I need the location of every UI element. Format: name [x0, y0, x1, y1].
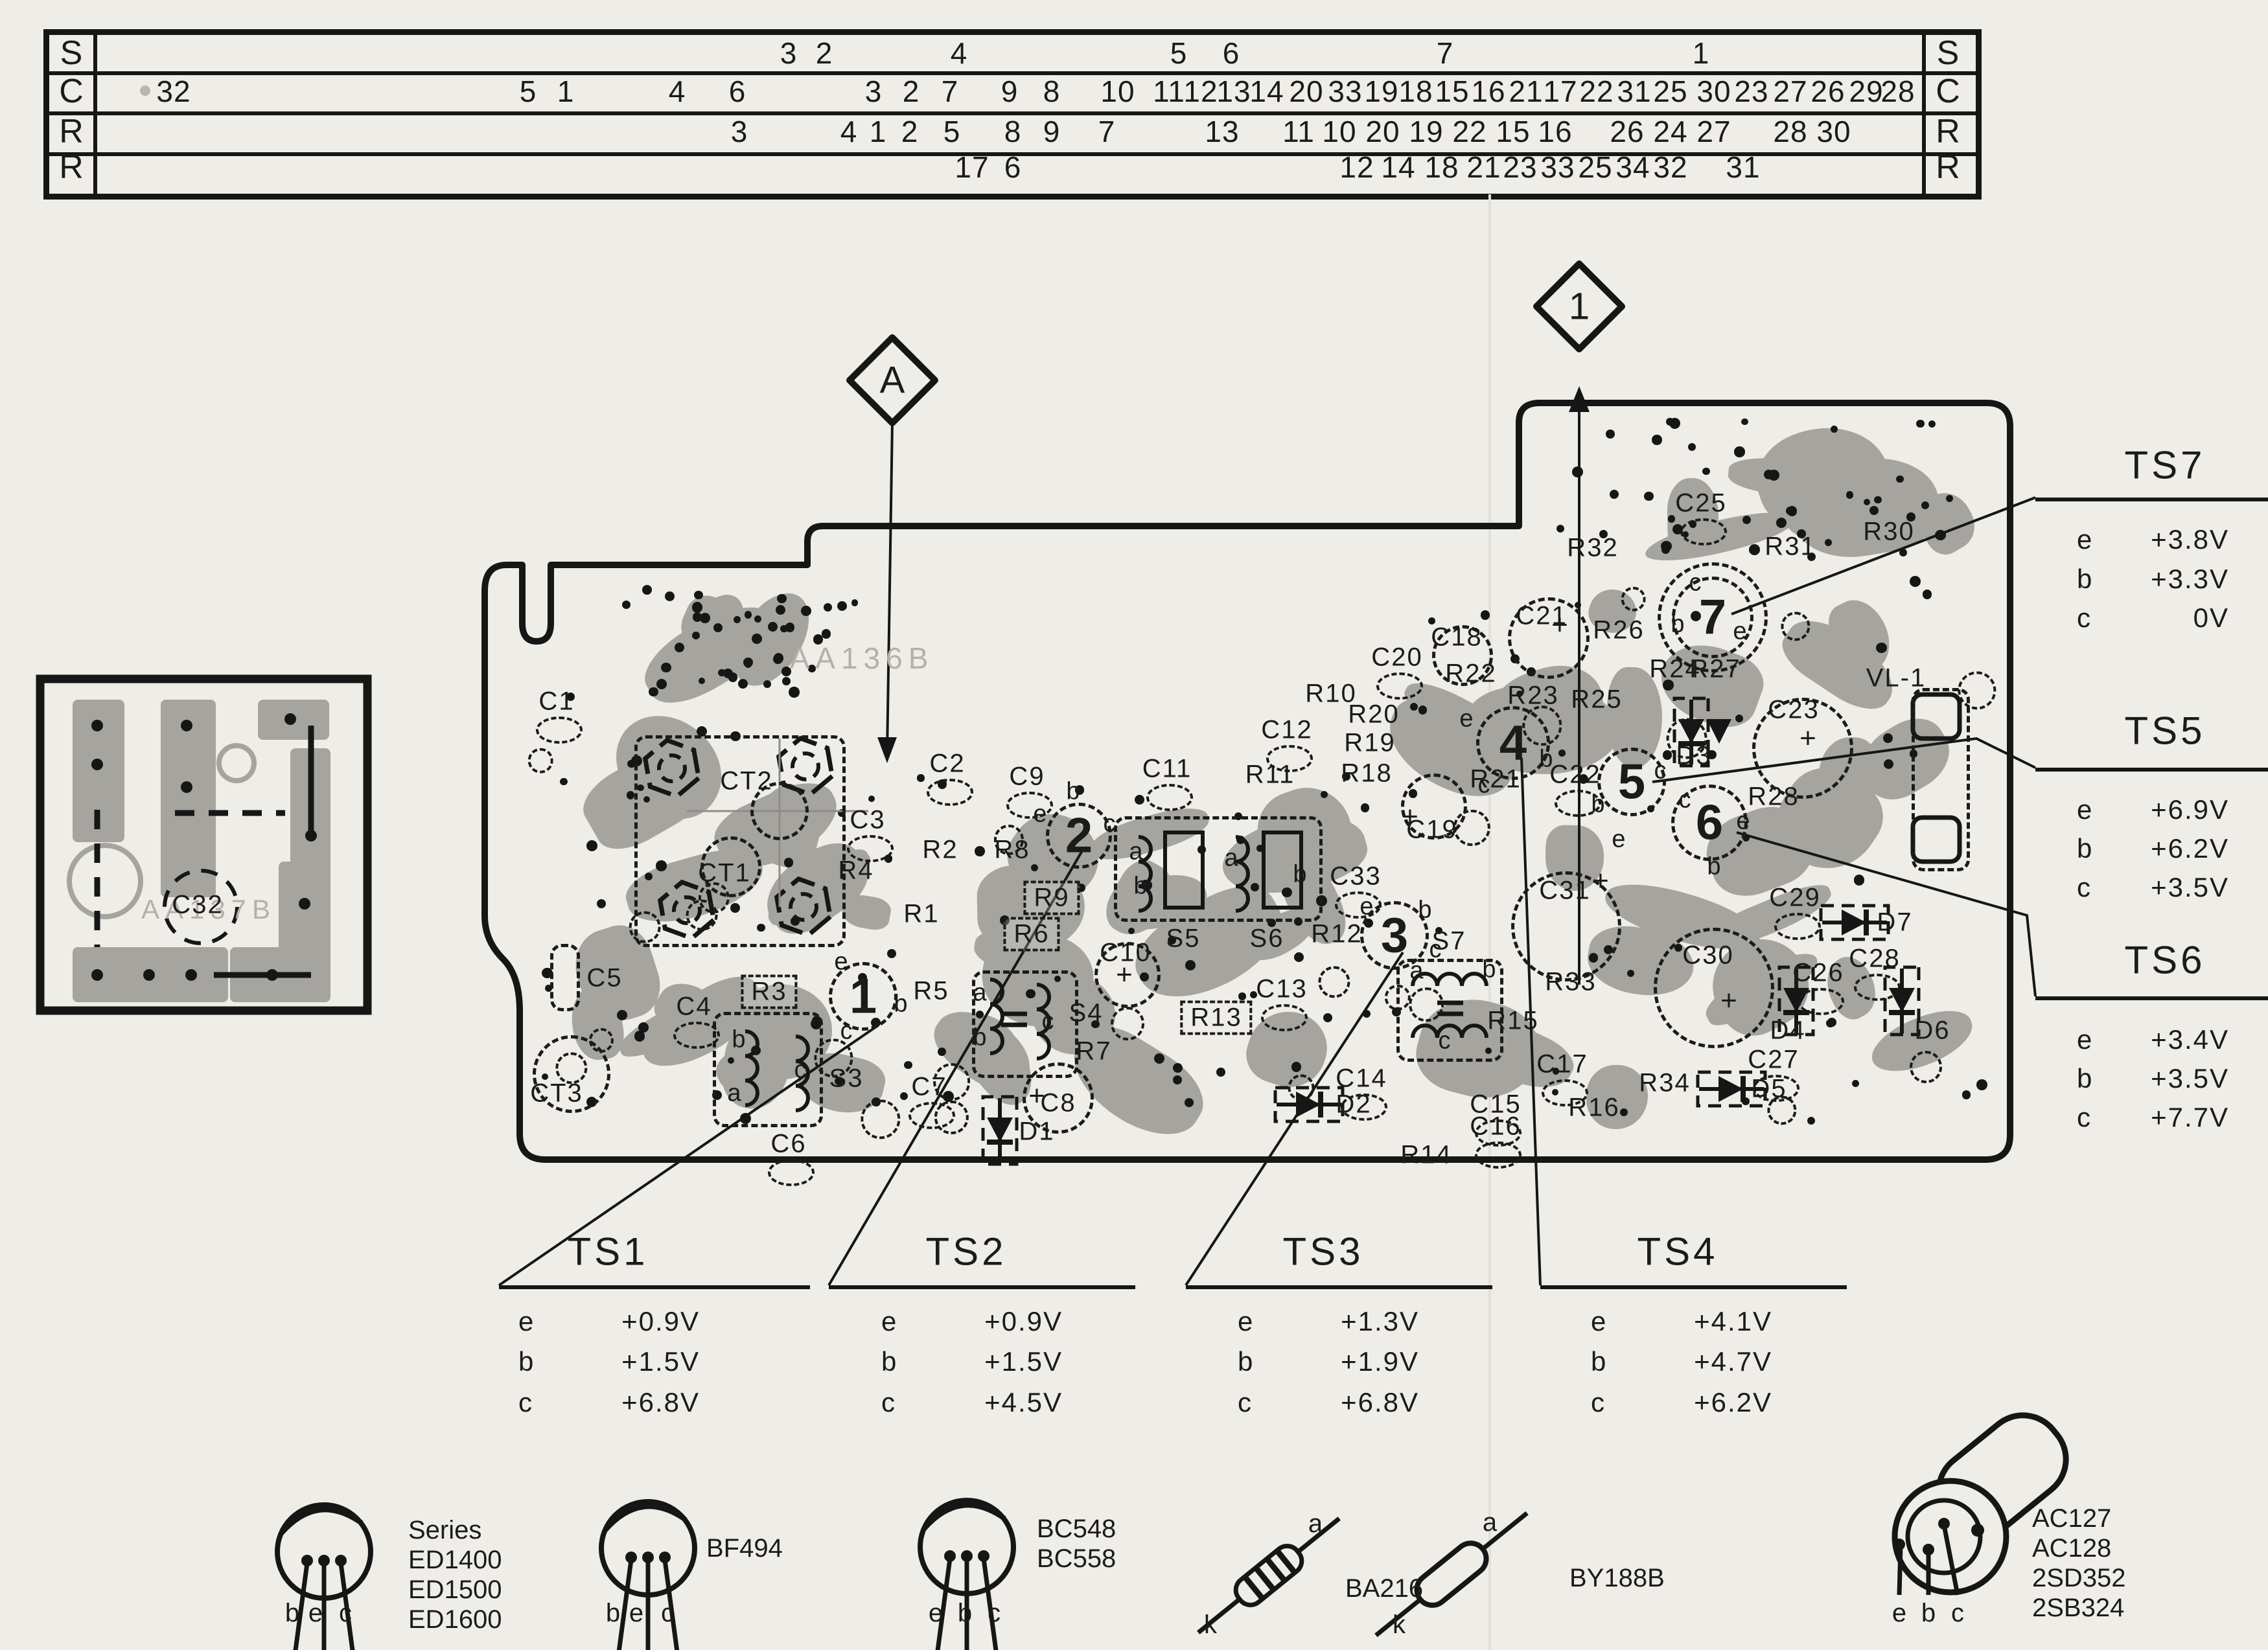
table-cell-number: 11 — [1282, 114, 1315, 149]
table-cell-number: 17 — [955, 150, 989, 185]
component-label-R16: R16 — [1568, 1094, 1619, 1123]
pin-letter-c: c — [794, 1057, 807, 1084]
solder-pad-dot — [1702, 468, 1710, 476]
solder-pad-dot — [1787, 506, 1797, 516]
solder-pad-dot — [975, 846, 985, 856]
legend-pin-b: b — [1921, 1599, 1936, 1628]
pin-letter-a: a — [1409, 957, 1423, 985]
board-name: AA136B — [790, 641, 934, 676]
legend-pin-c: c — [988, 1599, 1001, 1628]
component-label-R9: R9 — [1023, 881, 1080, 915]
small-board-pad — [266, 969, 278, 981]
small-board-pad — [143, 969, 155, 981]
solder-pad-dot — [1734, 446, 1744, 457]
pin-letter-c: c — [1042, 1008, 1054, 1036]
legend-pin-a: a — [1308, 1509, 1323, 1539]
pin-letter-e: e — [1733, 618, 1746, 646]
voltage-table-title-TS2: TS2 — [925, 1230, 1006, 1274]
solder-pad-dot — [801, 606, 811, 616]
capacitor-ellipse — [1854, 974, 1901, 1001]
legend-pin-b: b — [958, 1599, 972, 1628]
table-cell-number: 3 — [865, 74, 883, 109]
component-label-R18: R18 — [1341, 759, 1392, 788]
voltage-table-underline — [2035, 498, 2268, 501]
component-label-C31: C31 — [1539, 877, 1590, 906]
pad-dashed-circle — [1111, 1007, 1144, 1040]
component-label-C12: C12 — [1261, 716, 1312, 745]
transistor-number-7: 7 — [1699, 590, 1726, 646]
solder-pad-dot — [1644, 492, 1654, 501]
component-label-C4: C4 — [676, 992, 712, 1022]
voltage-value: +1.5V — [538, 1346, 700, 1377]
table-cell-number: 33 — [1328, 74, 1362, 109]
legend-name-ed-series: Series — [408, 1516, 481, 1545]
solder-pad-dot — [1962, 1090, 1971, 1099]
capacitor-ellipse — [1680, 518, 1727, 545]
solder-pad-dot — [617, 1010, 627, 1020]
table-row-label-right: R — [1936, 112, 1960, 151]
solder-pad-dot — [713, 623, 723, 632]
table-cell-number: 4 — [840, 114, 858, 149]
solder-pad-dot — [824, 603, 832, 612]
solder-pad-dot — [868, 796, 875, 803]
table-cell-number: 31 — [1726, 150, 1760, 185]
small-board-pad — [299, 898, 310, 910]
solder-pad-dot — [785, 623, 795, 632]
component-label-R28: R28 — [1748, 783, 1799, 812]
polarity-plus: + — [1116, 959, 1133, 991]
small-board-pad — [181, 781, 192, 793]
legend-name-ba216: BA216 — [1345, 1574, 1423, 1603]
component-label-D7: D7 — [1877, 908, 1912, 937]
component-label-C9: C9 — [1009, 762, 1045, 792]
solder-pad-dot — [1776, 518, 1787, 528]
table-cell-number: 2 — [816, 36, 833, 71]
component-label-C8: C8 — [1040, 1089, 1076, 1118]
table-cell-number: 21 — [1466, 150, 1501, 185]
table-cell-number: 17 — [1543, 74, 1577, 109]
component-label-R5: R5 — [913, 977, 949, 1006]
component-label-R6: R6 — [1003, 917, 1059, 952]
pin-letter-b: b — [1066, 778, 1080, 806]
table-cell-number: 19 — [1409, 114, 1443, 149]
component-label-C7: C7 — [911, 1073, 947, 1102]
table-right-divider — [1922, 35, 1926, 194]
table-cell-number: 28 — [1880, 74, 1915, 109]
component-label-S3: S3 — [829, 1064, 864, 1094]
voltage-table-underline — [2035, 996, 2268, 1000]
component-label-D6: D6 — [1914, 1016, 1950, 1046]
small-board-pad — [91, 759, 103, 770]
component-label-R4: R4 — [838, 856, 874, 886]
voltage-pin-label: b — [1591, 1346, 1606, 1377]
pin-letter-b: b — [1707, 853, 1720, 881]
polarity-plus: + — [1592, 865, 1609, 897]
transistor-number-4: 4 — [1499, 715, 1527, 772]
table-cell-number: 18 — [1398, 74, 1433, 109]
solder-pad-dot — [1294, 952, 1304, 962]
table-cell-number: 7 — [942, 74, 959, 109]
solder-pad-dot — [656, 679, 667, 689]
table-cell-number: 13 — [1205, 114, 1239, 149]
component-label-C22: C22 — [1549, 761, 1601, 790]
small-board-pad — [91, 720, 103, 731]
table-cell-number: 27 — [1773, 74, 1807, 109]
small-board-pad — [284, 713, 296, 725]
component-label-R13: R13 — [1180, 1001, 1252, 1035]
pin-letter-e: e — [1033, 801, 1047, 829]
component-label-R30: R30 — [1863, 518, 1914, 547]
pin-letter-c: c — [1654, 757, 1667, 785]
component-label-CT3: CT3 — [530, 1079, 583, 1108]
voltage-table-title-TS7: TS7 — [2124, 443, 2205, 488]
legend-pin-e: e — [1892, 1599, 1906, 1628]
voltage-pin-label: c — [1238, 1387, 1251, 1418]
table-cell-number: 23 — [1503, 150, 1537, 185]
transistor-number-2: 2 — [1065, 808, 1093, 864]
solder-pad-dot — [634, 1031, 645, 1041]
pin-letter-e: e — [834, 948, 848, 976]
capacitor-ellipse — [1376, 672, 1423, 700]
pin-letter-a: a — [727, 1080, 741, 1108]
table-cell-number: 8 — [1004, 114, 1022, 149]
solder-pad-dot — [1185, 960, 1196, 970]
table-cell-number: 2 — [901, 114, 919, 149]
solder-pad-dot — [1910, 576, 1921, 587]
voltage-value: +0.9V — [538, 1306, 700, 1337]
legend-pin-k: k — [1204, 1610, 1217, 1640]
component-label-R19: R19 — [1344, 729, 1395, 758]
table-cell-number: 16 — [1538, 114, 1572, 149]
solder-pad-dot — [1652, 435, 1662, 445]
table-cell-number: 25 — [1578, 150, 1612, 185]
table-row-label-right: S — [1937, 34, 1960, 73]
solder-pad-dot — [718, 669, 725, 676]
component-label-R12: R12 — [1311, 920, 1362, 949]
capacitor-ellipse — [1774, 913, 1821, 940]
component-label-R7: R7 — [1076, 1037, 1111, 1066]
voltage-table-underline — [2035, 768, 2268, 772]
legend-pin-e: e — [308, 1599, 323, 1628]
table-row-label-left: S — [60, 34, 83, 73]
solder-pad-dot — [738, 679, 748, 689]
component-label-C5: C5 — [586, 964, 622, 993]
small-board-pad — [181, 720, 192, 731]
solder-pad-dot — [597, 899, 606, 908]
solder-pad-dot — [1852, 1080, 1859, 1087]
legend-name-ed-series: ED1400 — [408, 1546, 502, 1575]
voltage-table-title-TS5: TS5 — [2124, 709, 2205, 753]
table-cell-number: 9 — [1043, 114, 1061, 149]
pin-letter-b: b — [1591, 791, 1604, 819]
component-label-R31: R31 — [1765, 533, 1816, 562]
component-label-R8: R8 — [994, 836, 1030, 865]
capacitor-ellipse — [536, 716, 583, 744]
component-label-C18: C18 — [1431, 623, 1482, 652]
diamond-ref-A: A — [880, 359, 905, 402]
pin-letter-c: c — [1439, 1027, 1451, 1055]
polarity-plus: + — [1028, 1080, 1045, 1112]
solder-pad-dot — [1749, 544, 1760, 555]
voltage-table-underline — [829, 1285, 1135, 1289]
solder-pad-dot — [1976, 1079, 1987, 1090]
voltage-value: +3.5V — [2067, 1063, 2229, 1094]
component-label-C6: C6 — [770, 1130, 806, 1159]
legend-name-ac127-group: 2SD352 — [2032, 1564, 2126, 1593]
solder-pad-dot — [1923, 590, 1932, 599]
solder-pad-dot — [1556, 525, 1564, 533]
solder-pad-dot — [665, 591, 675, 601]
solder-pad-dot — [586, 840, 597, 851]
table-cell-number: 2 — [903, 74, 920, 109]
voltage-pin-label: c — [881, 1387, 895, 1418]
component-label-C20: C20 — [1371, 643, 1422, 672]
table-row-label-right: C — [1936, 72, 1960, 111]
voltage-value: +6.9V — [2067, 794, 2229, 825]
table-cell-number: 6 — [729, 74, 746, 109]
component-label-R26: R26 — [1593, 616, 1644, 645]
pin-letter-b: b — [1418, 897, 1431, 924]
solder-pad-dot — [1410, 703, 1418, 711]
table-cell-number: 12 — [1339, 150, 1374, 185]
table-cell-number: 5 — [1170, 36, 1188, 71]
legend-name-bf494: BF494 — [706, 1534, 783, 1563]
voltage-value: +1.5V — [901, 1346, 1063, 1377]
solder-pad-dot — [1688, 443, 1696, 451]
voltage-pin-label: c — [518, 1387, 532, 1418]
solder-pad-dot — [900, 1092, 908, 1100]
table-cell-number: 30 — [1816, 114, 1851, 149]
pin-letter-a: a — [1129, 838, 1142, 866]
pin-letter-b: b — [1539, 746, 1553, 773]
pin-letter-e: e — [1736, 808, 1750, 836]
voltage-value: +3.5V — [2067, 872, 2229, 903]
solder-pad-dot — [887, 949, 896, 958]
solder-pad-dot — [1807, 1117, 1815, 1125]
voltage-value: +3.3V — [2067, 564, 2229, 595]
pad-dashed-circle — [1910, 1051, 1942, 1083]
component-label-R34: R34 — [1639, 1069, 1690, 1098]
voltage-table-title-TS4: TS4 — [1637, 1230, 1718, 1274]
voltage-table-title-TS6: TS6 — [2124, 938, 2205, 983]
component-label-R2: R2 — [922, 836, 958, 865]
table-cell-number: 24 — [1653, 114, 1687, 149]
table-cell-number: 33 — [1540, 150, 1575, 185]
legend-name-ac127-group: AC127 — [2032, 1504, 2111, 1533]
voltage-pin-label: b — [881, 1346, 896, 1377]
component-label-R20: R20 — [1348, 700, 1399, 729]
legend-pin-e: e — [929, 1599, 943, 1628]
table-left-divider — [93, 35, 97, 194]
small-board-pad — [185, 969, 197, 981]
component-label-R23: R23 — [1507, 682, 1558, 711]
voltage-value: +1.3V — [1257, 1306, 1419, 1337]
pin-letter-e: e — [1360, 893, 1373, 921]
solder-pad-dot — [1869, 506, 1879, 515]
table-cell-number: 20 — [1289, 74, 1323, 109]
solder-pad-dot — [642, 585, 652, 595]
transistor-number-3: 3 — [1381, 908, 1408, 964]
component-outline-box — [713, 1012, 823, 1127]
table-cell-number: 23 — [1734, 74, 1768, 109]
solder-pad-dot — [1558, 750, 1566, 757]
solder-pad-dot — [1216, 1068, 1225, 1077]
voltage-value: +1.9V — [1257, 1346, 1419, 1377]
pin-letter-b: b — [1293, 861, 1306, 889]
voltage-table-underline — [499, 1285, 810, 1289]
component-label-C16: C16 — [1470, 1112, 1521, 1141]
component-label-R15: R15 — [1487, 1007, 1538, 1036]
table-cell-number: 30 — [1696, 74, 1731, 109]
solder-pad-dot — [1764, 470, 1774, 479]
voltage-value: +6.8V — [1257, 1387, 1419, 1418]
table-row-label-left: R — [59, 148, 84, 187]
capacitor-ellipse — [1798, 988, 1844, 1015]
component-label-D5: D5 — [1751, 1075, 1787, 1104]
legend-pin-b: b — [285, 1599, 299, 1628]
solder-pad-dot — [1741, 418, 1748, 425]
solder-pad-dot — [675, 643, 684, 652]
table-cell-number: 9 — [1001, 74, 1019, 109]
component-label-C25: C25 — [1675, 489, 1726, 518]
legend-name-bc548-bc558: BC548 — [1037, 1515, 1116, 1544]
table-cell-number: 13 — [1216, 74, 1251, 109]
capacitor-ellipse — [927, 779, 973, 806]
table-cell-number: 32 — [156, 74, 191, 109]
solder-pad-dot — [774, 653, 783, 663]
table-cell-number: 22 — [1452, 114, 1487, 149]
legend-pin-c: c — [661, 1599, 674, 1628]
component-label-R3: R3 — [741, 975, 797, 1009]
pin-letter-b: b — [1133, 873, 1147, 900]
table-cell-number: 34 — [1615, 150, 1650, 185]
component-label-D3: D3 — [1676, 742, 1711, 771]
capacitor-ellipse — [1475, 1141, 1522, 1169]
pad-dashed-circle — [1288, 1074, 1315, 1101]
voltage-value: +0.9V — [901, 1306, 1063, 1337]
voltage-pin-label: e — [1591, 1306, 1606, 1337]
solder-pad-dot — [1135, 795, 1144, 805]
small-board-pad — [305, 830, 317, 842]
pin-letter-b: b — [1482, 956, 1496, 984]
pin-letter-a: a — [973, 980, 986, 1007]
voltage-pin-label: b — [1238, 1346, 1253, 1377]
component-outline-box — [1912, 688, 1970, 871]
pcb-service-diagram-page: SCRRSCRR32456713251463279810111213142033… — [0, 0, 2268, 1650]
table-cell-number: 7 — [1437, 36, 1454, 71]
table-cell-number: 15 — [1435, 74, 1469, 109]
component-label-C28: C28 — [1849, 945, 1900, 974]
solder-pad-dot — [1899, 549, 1907, 556]
solder-pad-dot — [1876, 643, 1886, 653]
table-cell-number: 27 — [1696, 114, 1731, 149]
table-cell-number: 21 — [1509, 74, 1543, 109]
solder-pad-dot — [1627, 970, 1634, 977]
table-cell-number: 1 — [870, 114, 887, 149]
pin-letter-a: a — [1224, 845, 1238, 873]
component-label-R22: R22 — [1445, 659, 1496, 689]
capacitor-ellipse — [768, 1159, 815, 1186]
component-label-D2: D2 — [1336, 1090, 1371, 1119]
solder-pad-dot — [1916, 420, 1925, 428]
pin-letter-c: c — [1429, 936, 1442, 964]
legend-pin-k: k — [1393, 1610, 1406, 1640]
capacitor-ellipse — [1146, 784, 1193, 811]
legend-pin-c: c — [339, 1599, 352, 1628]
pin-letter-b: b — [732, 1026, 745, 1054]
component-label-R14: R14 — [1400, 1141, 1452, 1170]
legend-name-by188b: BY188B — [1569, 1564, 1665, 1593]
table-cell-number: 6 — [1004, 150, 1022, 185]
component-label-C2: C2 — [929, 750, 965, 779]
component-label-C27: C27 — [1748, 1046, 1799, 1075]
transistor-number-5: 5 — [1618, 754, 1645, 810]
component-outline-box — [972, 970, 1078, 1078]
pin-letter-b: b — [894, 991, 907, 1018]
small-board-pad — [91, 969, 103, 981]
solder-pad-dot — [692, 632, 700, 639]
solder-pad-dot — [649, 687, 658, 697]
component-label-R11: R11 — [1245, 761, 1295, 790]
solder-pad-dot — [763, 680, 771, 688]
solder-pad-dot — [734, 616, 741, 623]
voltage-value: +3.4V — [2067, 1024, 2229, 1055]
solder-pad-dot — [837, 601, 847, 611]
component-label-CT1: CT1 — [698, 859, 751, 888]
component-label-C29: C29 — [1769, 884, 1820, 913]
voltage-pin-label: c — [1591, 1387, 1604, 1418]
transistor-number-1: 1 — [850, 968, 877, 1025]
voltage-pin-label: e — [1238, 1306, 1253, 1337]
table-cell-number: 5 — [943, 114, 961, 149]
table-cell-number: 25 — [1653, 74, 1687, 109]
table-cell-number: 31 — [1617, 74, 1651, 109]
solder-pad-dot — [1323, 1013, 1332, 1022]
solder-pad-dot — [1154, 1053, 1164, 1064]
table-cell-number: 32 — [1653, 150, 1687, 185]
capacitor-ellipse — [673, 1022, 720, 1049]
small-board-cap-label: C32 — [172, 891, 223, 920]
pin-letter-c: c — [1104, 810, 1116, 838]
solder-pad-dot — [917, 774, 924, 781]
component-outline-box — [1114, 816, 1323, 922]
solder-pad-dot — [1361, 803, 1369, 812]
polarity-plus: + — [1799, 722, 1816, 755]
solder-pad-dot — [692, 602, 702, 612]
table-cell-number: 16 — [1471, 74, 1505, 109]
table-cell-number: 14 — [1249, 74, 1284, 109]
component-label-VL-1: VL-1 — [1866, 664, 1927, 693]
voltage-table-underline — [1186, 1285, 1492, 1289]
solder-pad-dot — [694, 591, 703, 600]
solder-pad-dot — [1928, 420, 1936, 428]
component-label-R1: R1 — [903, 900, 939, 929]
solder-pad-dot — [1572, 466, 1583, 477]
voltage-pin-label: e — [518, 1306, 533, 1337]
voltage-value: 0V — [2067, 602, 2229, 634]
table-cell-number: 5 — [520, 74, 537, 109]
routing-table: SCRRSCRR32456713251463279810111213142033… — [43, 29, 1982, 200]
component-label-C14: C14 — [1336, 1064, 1387, 1094]
voltage-table-title-TS1: TS1 — [567, 1230, 648, 1274]
pin-letter-c: c — [1478, 772, 1490, 799]
voltage-value: +7.7V — [2067, 1102, 2229, 1133]
pad-dashed-circle — [861, 1099, 900, 1139]
solder-pad-dot — [1742, 1097, 1750, 1105]
legend-pin-c: c — [1951, 1599, 1964, 1628]
table-cell-number: 26 — [1610, 114, 1644, 149]
voltage-value: +6.2V — [1610, 1387, 1772, 1418]
